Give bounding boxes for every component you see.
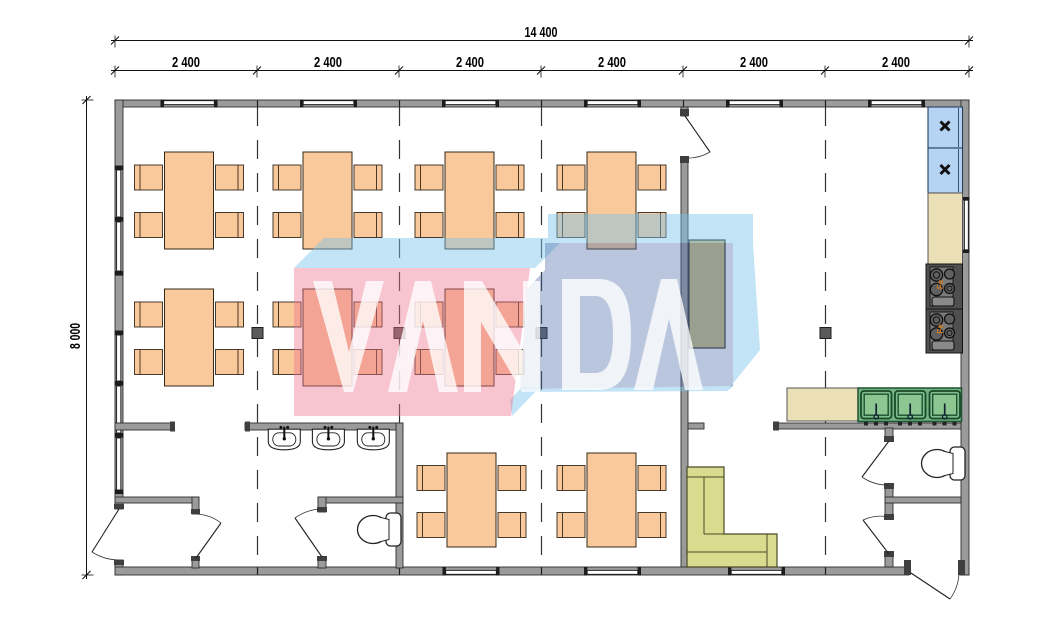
svg-text:2 400: 2 400 <box>882 54 910 71</box>
svg-text:2 400: 2 400 <box>740 54 768 71</box>
svg-text:2 400: 2 400 <box>456 54 484 71</box>
svg-text:Fe: Fe <box>936 324 945 334</box>
svg-text:2 400: 2 400 <box>314 54 342 71</box>
svg-text:14 400: 14 400 <box>525 24 558 41</box>
svg-text:2 400: 2 400 <box>172 54 200 71</box>
svg-text:8 000: 8 000 <box>67 323 84 349</box>
svg-text:2 400: 2 400 <box>598 54 626 71</box>
svg-text:Fe: Fe <box>936 279 945 289</box>
